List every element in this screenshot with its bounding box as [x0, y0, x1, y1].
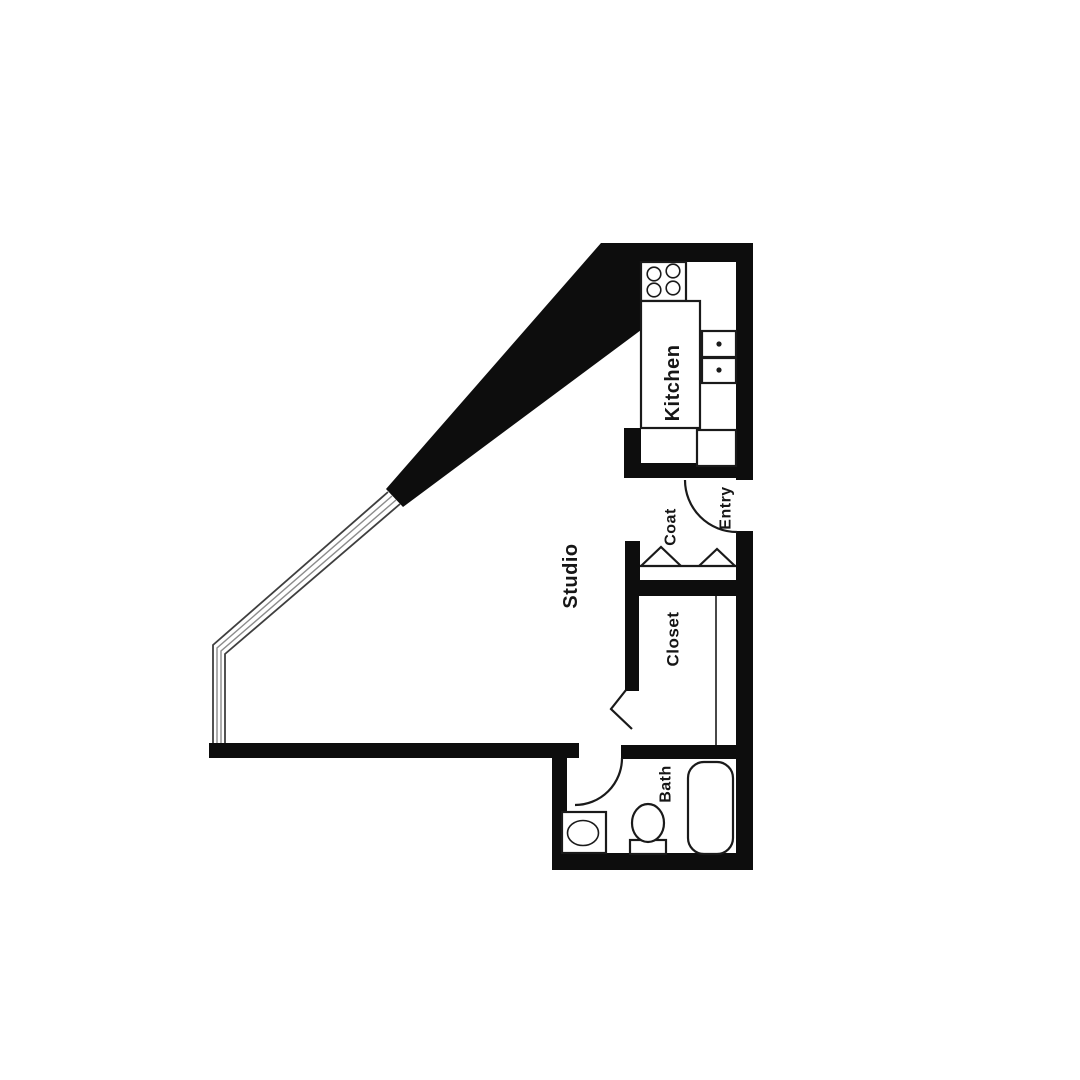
window-wall	[213, 492, 400, 743]
wall-bath-bottom	[552, 853, 753, 870]
wall-coat-closet-divider	[625, 580, 753, 596]
floor-plan: Kitchen Entry Coat Closet Ba	[0, 0, 1080, 1080]
entry-label: Entry	[718, 486, 735, 529]
sink-drain-icon	[716, 367, 721, 372]
studio-label: Studio	[560, 543, 582, 608]
wall-closet-left	[625, 596, 639, 691]
bathroom-sink-icon	[562, 812, 606, 853]
bifold-door-icon	[699, 549, 735, 566]
bathtub-icon	[688, 762, 733, 854]
bath-area: Bath	[562, 758, 733, 854]
kitchen-label: Kitchen	[662, 345, 684, 422]
closet-door-icon	[611, 690, 632, 729]
wall-right-upper	[736, 243, 753, 480]
studio-area: Studio	[560, 543, 582, 608]
sink-drain-icon	[716, 341, 721, 346]
bifold-door-icon	[641, 547, 681, 566]
wall-closet-bottom	[621, 745, 753, 759]
wall-diagonal	[386, 243, 641, 507]
coat-label: Coat	[663, 508, 680, 546]
bath-door-swing-icon	[575, 758, 622, 805]
window-line-outer-2	[225, 504, 400, 743]
kitchen-area: Kitchen	[641, 262, 736, 466]
entry-area: Entry	[685, 480, 737, 532]
closet-label: Closet	[664, 612, 683, 667]
wall-kitchen-left-stub	[624, 428, 641, 478]
toilet-icon	[632, 804, 664, 842]
refrigerator-icon	[697, 430, 736, 466]
wall-studio-bottom	[209, 743, 579, 758]
floor-plan-drawing: Kitchen Entry Coat Closet Ba	[0, 0, 1080, 1080]
bath-label: Bath	[658, 765, 675, 803]
